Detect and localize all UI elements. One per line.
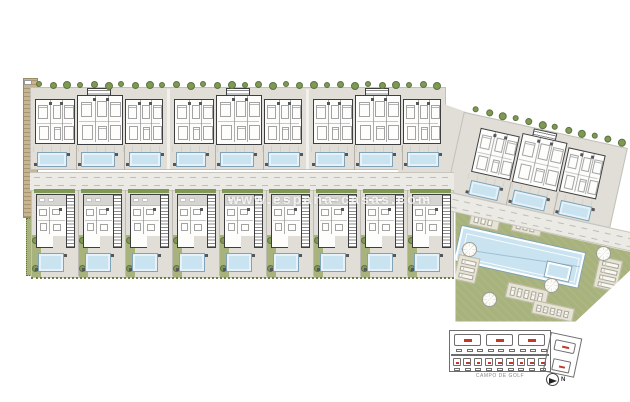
wall-partition: [279, 100, 280, 141]
pool-skimmer: [111, 254, 114, 257]
tree-icon: [485, 109, 493, 117]
pool-skimmer: [356, 163, 359, 166]
fixture-mark: [188, 102, 191, 105]
apartment-unit-plan: [471, 128, 520, 181]
furniture-detail: [537, 169, 544, 172]
furniture-mark: [100, 224, 108, 231]
furniture-mark: [281, 105, 289, 119]
lounger-line: [462, 267, 464, 271]
furniture-detail: [571, 155, 578, 158]
keyplan-villa-mark: [495, 358, 503, 366]
furniture-mark: [110, 125, 121, 140]
furniture-mark: [53, 224, 61, 231]
fixture-mark: [537, 139, 541, 143]
tree-icon: [173, 81, 180, 88]
apartment-unit-plan: [216, 95, 262, 145]
tree-icon: [187, 82, 195, 90]
pool-skimmer: [508, 200, 512, 204]
pool-skimmer: [411, 268, 414, 271]
wall-partition: [328, 100, 329, 141]
lounger-line: [461, 274, 463, 278]
lounger-line: [511, 289, 515, 291]
fixture-mark: [106, 208, 109, 211]
tree-icon: [36, 81, 42, 87]
lounger-line: [464, 260, 466, 264]
furniture-detail: [377, 127, 383, 129]
pool-skimmer: [439, 153, 442, 156]
furniture-mark: [203, 126, 213, 140]
pool-skimmer: [299, 254, 302, 257]
sun-lounger: [549, 307, 555, 315]
lounger-pad: [593, 256, 623, 292]
keyplan-pool-mark: [530, 349, 536, 352]
villa-plan: [36, 194, 75, 248]
villa-plan: [177, 194, 216, 248]
roof-furniture: [48, 198, 54, 202]
furniture-mark: [220, 102, 231, 117]
keyplan-pool-mark: [475, 368, 481, 371]
furniture-mark: [587, 180, 599, 195]
wall-partition: [273, 220, 300, 221]
fixture-mark: [60, 102, 63, 105]
tree-icon: [379, 82, 386, 89]
furniture-mark: [505, 140, 517, 155]
pool-skimmer: [393, 153, 396, 156]
furniture-mark: [431, 126, 440, 140]
furniture-detail: [508, 142, 516, 146]
apartment-unit-plan: [35, 99, 75, 144]
sun-lounger: [523, 289, 530, 299]
lounger-line: [603, 269, 605, 273]
villa-pool: [85, 253, 111, 272]
furniture-mark: [98, 126, 106, 140]
furniture-detail: [580, 180, 585, 183]
umbrella-icon: [608, 290, 623, 305]
keyplan-red-label: [530, 362, 534, 364]
tree-icon: [551, 123, 558, 130]
furniture-mark: [249, 125, 260, 140]
pool-skimmer: [158, 254, 161, 257]
furniture-mark: [282, 127, 289, 140]
pool-skimmer: [312, 163, 315, 166]
furniture-mark: [332, 127, 339, 140]
fixture-mark: [277, 102, 280, 105]
furniture-detail: [204, 106, 212, 108]
furniture-detail: [99, 127, 105, 129]
furniture-mark: [87, 223, 94, 231]
keyplan-villa-mark: [474, 358, 482, 366]
roof-furniture: [39, 198, 45, 202]
pool-skimmer: [440, 254, 443, 257]
fixture-mark: [49, 102, 52, 105]
furniture-mark: [194, 224, 202, 231]
lounger-line: [565, 313, 569, 315]
hedge-strip: [81, 189, 122, 193]
villa-pool: [273, 253, 299, 272]
stair-strip: [160, 195, 168, 247]
pool-skimmer: [34, 163, 37, 166]
furniture-mark: [128, 105, 137, 119]
block-gap: [306, 89, 309, 169]
furniture-mark: [388, 102, 399, 117]
tree-icon: [283, 81, 289, 87]
tree-icon: [242, 82, 248, 88]
keyplan-area-label: CAMPO DE GOLF: [440, 373, 560, 379]
furniture-mark: [369, 223, 376, 231]
keyplan-pool-mark: [508, 368, 514, 371]
furniture-detail: [178, 106, 186, 108]
keyplan-block-mark: [486, 334, 513, 346]
keyplan-pool-mark: [477, 349, 483, 352]
fixture-mark: [232, 98, 235, 101]
fixture-mark: [384, 98, 387, 101]
furniture-mark: [388, 125, 399, 140]
keyplan-red-label: [456, 362, 460, 364]
furniture-mark: [335, 224, 343, 231]
fixture-mark: [427, 102, 430, 105]
tree-icon: [577, 129, 587, 139]
wall-partition: [357, 121, 398, 122]
furniture-detail: [221, 103, 230, 105]
furniture-detail: [525, 142, 534, 146]
apartment-block: [309, 88, 445, 170]
ground-terrace: [53, 236, 66, 249]
unit-pool: [37, 152, 67, 167]
tree-icon: [472, 106, 479, 113]
keyplan-pool-mark: [456, 349, 462, 352]
fixture-mark: [245, 98, 248, 101]
sun-lounger: [509, 286, 516, 296]
pool-skimmer: [173, 163, 176, 166]
furniture-mark: [82, 125, 93, 140]
furniture-mark: [321, 209, 329, 216]
tree-icon: [269, 82, 277, 90]
pool-skimmer: [500, 187, 504, 191]
furniture-mark: [322, 223, 329, 231]
tree-icon: [591, 132, 598, 139]
fixture-mark: [388, 208, 391, 211]
furniture-detail: [111, 103, 120, 105]
lounger-line: [551, 310, 555, 312]
tree-icon: [324, 82, 330, 88]
furniture-mark: [316, 105, 326, 119]
unit-pool: [407, 152, 439, 167]
fixture-mark: [416, 102, 419, 105]
furniture-mark: [86, 209, 94, 216]
wall-partition: [266, 123, 299, 124]
furniture-detail: [55, 128, 60, 130]
pool-skimmer: [555, 210, 559, 214]
keyplan-pool-mark: [488, 349, 494, 352]
pool-skimmer: [591, 208, 595, 212]
fixture-mark: [493, 134, 497, 138]
tree-icon: [512, 114, 519, 121]
pool-skimmer: [126, 163, 129, 166]
unit-pool: [129, 152, 161, 167]
ground-terrace: [194, 236, 207, 249]
pool-skimmer: [393, 254, 396, 257]
ground-terrace: [241, 236, 254, 249]
apartment-unit-plan: [174, 99, 214, 144]
keyplan-villa-mark: [517, 358, 525, 366]
furniture-mark: [64, 105, 74, 119]
ground-terrace: [382, 236, 395, 249]
wall-partition: [405, 123, 438, 124]
unit-pool: [220, 152, 254, 167]
lounger-line: [539, 295, 543, 297]
lounger-line: [600, 283, 602, 287]
furniture-mark: [236, 101, 245, 117]
fixture-mark: [199, 102, 202, 105]
wall-partition: [218, 121, 259, 122]
unit-pool: [268, 152, 300, 167]
tree-icon: [310, 81, 318, 89]
furniture-mark: [331, 105, 339, 119]
furniture-mark: [368, 209, 376, 216]
keyplan-red-label: [488, 362, 492, 364]
keyplan-pool-mark: [529, 368, 535, 371]
apartment-unit-plan: [125, 99, 163, 144]
site-plan: www.espana-casas.com CAMPO DE GOLF N: [0, 0, 630, 402]
wall-partition: [234, 96, 235, 142]
pool-skimmer: [252, 254, 255, 257]
keyplan-annex-outline: [543, 332, 583, 378]
keyplan-villa-mark: [453, 358, 461, 366]
unit-pool: [81, 152, 115, 167]
sun-lounger: [542, 306, 548, 314]
furniture-mark: [192, 105, 200, 119]
wall-partition: [140, 100, 141, 141]
ground-terrace: [288, 236, 301, 249]
wall-partition: [176, 123, 211, 124]
entrance-marker: [24, 80, 32, 85]
pool-skimmer: [270, 268, 273, 271]
keyplan-pool-mark: [509, 349, 515, 352]
site-boundary-dotted: [31, 277, 454, 279]
umbrella-icon: [544, 278, 559, 293]
wall-partition: [37, 123, 72, 124]
keyplan-pool-mark: [518, 368, 524, 371]
wall-partition: [79, 121, 120, 122]
wall-partition: [418, 100, 419, 141]
pool-skimmer: [364, 268, 367, 271]
roof-furniture: [142, 198, 148, 202]
wall-partition: [320, 220, 347, 221]
furniture-mark: [407, 126, 416, 140]
lounger-line: [518, 291, 522, 293]
furniture-mark: [591, 159, 603, 174]
furniture-mark: [292, 126, 301, 140]
furniture-mark: [54, 127, 61, 140]
wall-partition: [367, 220, 394, 221]
furniture-mark: [39, 126, 49, 140]
keyplan-red-label: [520, 362, 524, 364]
unit-pool: [315, 152, 345, 167]
keyplan-block-mark: [454, 334, 481, 346]
villa-plan: [130, 194, 169, 248]
furniture-detail: [360, 103, 369, 105]
tree-icon: [132, 82, 139, 89]
pool-skimmer: [300, 153, 303, 156]
pool-skimmer: [547, 198, 551, 202]
furniture-mark: [40, 223, 47, 231]
pool-skimmer: [176, 268, 179, 271]
pool-skimmer: [254, 153, 257, 156]
wall-partition: [179, 220, 206, 221]
furniture-mark: [147, 224, 155, 231]
furniture-mark: [133, 209, 141, 216]
keyplan-pool-mark: [497, 368, 503, 371]
roof-furniture: [86, 198, 92, 202]
furniture-mark: [292, 105, 301, 119]
apartment-unit-plan: [77, 95, 123, 145]
tree-icon: [146, 81, 154, 89]
roof-furniture: [180, 198, 186, 202]
tree-icon: [604, 135, 612, 143]
furniture-mark: [431, 105, 440, 119]
lounger-line: [532, 294, 536, 296]
wall-partition: [38, 220, 65, 221]
furniture-detail: [343, 106, 351, 108]
hedge-strip: [34, 189, 75, 193]
pool-skimmer: [67, 153, 70, 156]
furniture-mark: [420, 105, 428, 119]
villa-pool: [414, 253, 440, 272]
furniture-detail: [493, 160, 498, 163]
keyplan-red-label: [559, 365, 565, 368]
furniture-mark: [178, 126, 188, 140]
furniture-mark: [376, 126, 384, 140]
furniture-mark: [342, 105, 352, 119]
keyplan-red-label: [562, 346, 569, 350]
pool-skimmer: [345, 153, 348, 156]
keyplan-red-label: [498, 362, 502, 364]
keyplan-road-mark: [451, 354, 549, 357]
furniture-detail: [154, 106, 161, 108]
road-dash-line: [34, 185, 450, 186]
tree-icon: [105, 82, 113, 90]
furniture-mark: [110, 102, 121, 117]
furniture-mark: [81, 102, 92, 117]
wall-partition: [95, 96, 96, 142]
ground-terrace: [335, 236, 348, 249]
keyplan-red-label: [464, 339, 472, 342]
fixture-mark: [149, 102, 152, 105]
furniture-mark: [193, 127, 200, 140]
furniture-mark: [360, 125, 371, 140]
furniture-mark: [382, 224, 390, 231]
furniture-mark: [517, 163, 531, 180]
keyplan-pool-mark: [520, 349, 526, 352]
furniture-detail: [39, 106, 47, 108]
wall-partition: [373, 96, 374, 142]
keyplan-villa-mark: [485, 358, 493, 366]
villa-pool: [132, 253, 158, 272]
tree-icon: [50, 82, 57, 89]
furniture-mark: [142, 105, 150, 119]
road-dash-line: [34, 177, 450, 178]
fixture-mark: [435, 208, 438, 211]
pool-skimmer: [206, 153, 209, 156]
apartment-unit-plan: [512, 133, 568, 192]
umbrella-icon: [596, 246, 611, 261]
furniture-mark: [227, 209, 235, 216]
furniture-detail: [250, 103, 259, 105]
keyplan-red-label: [477, 362, 481, 364]
villa-pool: [367, 253, 393, 272]
lounger-line: [604, 262, 606, 266]
furniture-mark: [274, 209, 282, 216]
keyplan-pool-mark: [486, 368, 492, 371]
north-label: N: [561, 377, 565, 383]
furniture-mark: [181, 223, 188, 231]
villa-pool: [38, 253, 64, 272]
apartment-unit-plan: [264, 99, 302, 144]
furniture-detail: [144, 128, 149, 130]
furniture-detail: [65, 106, 73, 108]
furniture-detail: [82, 103, 91, 105]
wall-partition: [85, 220, 112, 221]
furniture-mark: [288, 224, 296, 231]
keyplan-block-mark: [553, 339, 576, 354]
keyplan-red-label: [466, 362, 470, 364]
furniture-mark: [268, 126, 277, 140]
lounger-line: [525, 292, 529, 294]
furniture-mark: [545, 169, 559, 186]
furniture-mark: [406, 105, 415, 119]
apartment-block: [31, 88, 167, 170]
furniture-mark: [237, 126, 245, 140]
pool-skimmer: [223, 268, 226, 271]
stair-strip: [66, 195, 74, 247]
pool-skimmer: [346, 254, 349, 257]
lounger-line: [558, 312, 562, 314]
pool-skimmer: [78, 163, 81, 166]
villa-pool: [320, 253, 346, 272]
keyplan-pool-mark: [467, 349, 473, 352]
furniture-mark: [275, 223, 282, 231]
pool-skimmer: [161, 153, 164, 156]
fixture-mark: [288, 102, 291, 105]
fixture-mark: [591, 155, 595, 159]
furniture-mark: [249, 102, 260, 117]
keyplan-villa-mark: [551, 358, 571, 373]
unit-pool: [176, 152, 206, 167]
furniture-mark: [267, 105, 276, 119]
tree-icon: [406, 82, 412, 88]
lounger-line: [537, 307, 541, 309]
furniture-detail: [129, 106, 136, 108]
furniture-detail: [293, 106, 300, 108]
furniture-detail: [422, 128, 427, 130]
furniture-mark: [180, 209, 188, 216]
keyplan-pool-mark: [498, 349, 504, 352]
roof-furniture: [95, 198, 101, 202]
fixture-mark: [200, 208, 203, 211]
furniture-mark: [241, 224, 249, 231]
wall-partition: [189, 100, 190, 141]
furniture-mark: [375, 101, 384, 117]
sun-lounger: [556, 309, 562, 317]
fixture-mark: [153, 208, 156, 211]
fixture-mark: [106, 98, 109, 101]
ground-terrace: [100, 236, 113, 249]
fixture-mark: [93, 98, 96, 101]
keyplan-red-label: [509, 362, 513, 364]
keyplan-pool-mark: [454, 368, 460, 371]
tree-icon: [564, 126, 572, 134]
furniture-mark: [134, 223, 141, 231]
